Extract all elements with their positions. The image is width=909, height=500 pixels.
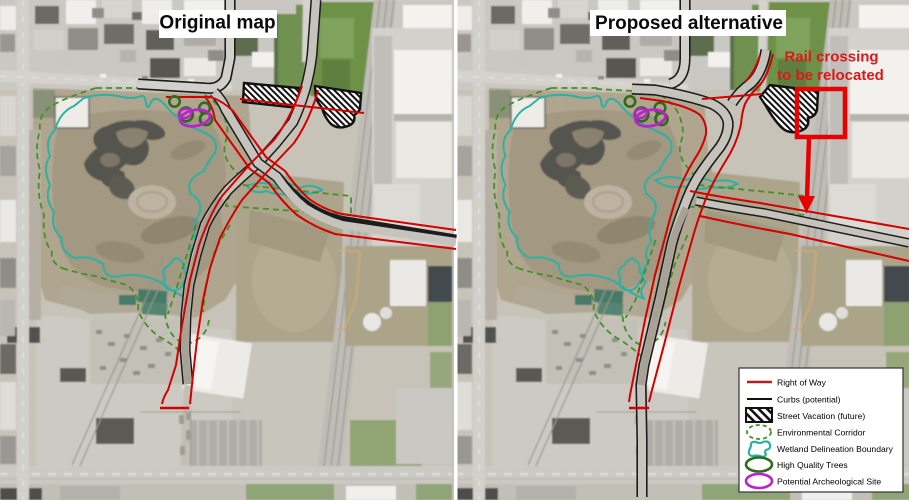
- svg-text:Curbs (potential): Curbs (potential): [777, 395, 841, 405]
- svg-text:to be relocated: to be relocated: [777, 67, 884, 84]
- svg-text:Proposed alternative: Proposed alternative: [595, 13, 783, 34]
- svg-text:Potential Archeological Site: Potential Archeological Site: [777, 477, 881, 487]
- svg-text:High Quality Trees: High Quality Trees: [777, 460, 848, 470]
- svg-text:Environmental Corridor: Environmental Corridor: [777, 428, 865, 438]
- svg-text:Wetland Delineation Boundary: Wetland Delineation Boundary: [777, 444, 894, 454]
- svg-text:Rail crossing: Rail crossing: [784, 49, 878, 66]
- svg-text:Street Vacation (future): Street Vacation (future): [777, 411, 865, 421]
- svg-text:Original map: Original map: [159, 13, 275, 34]
- svg-text:Right of Way: Right of Way: [777, 378, 827, 388]
